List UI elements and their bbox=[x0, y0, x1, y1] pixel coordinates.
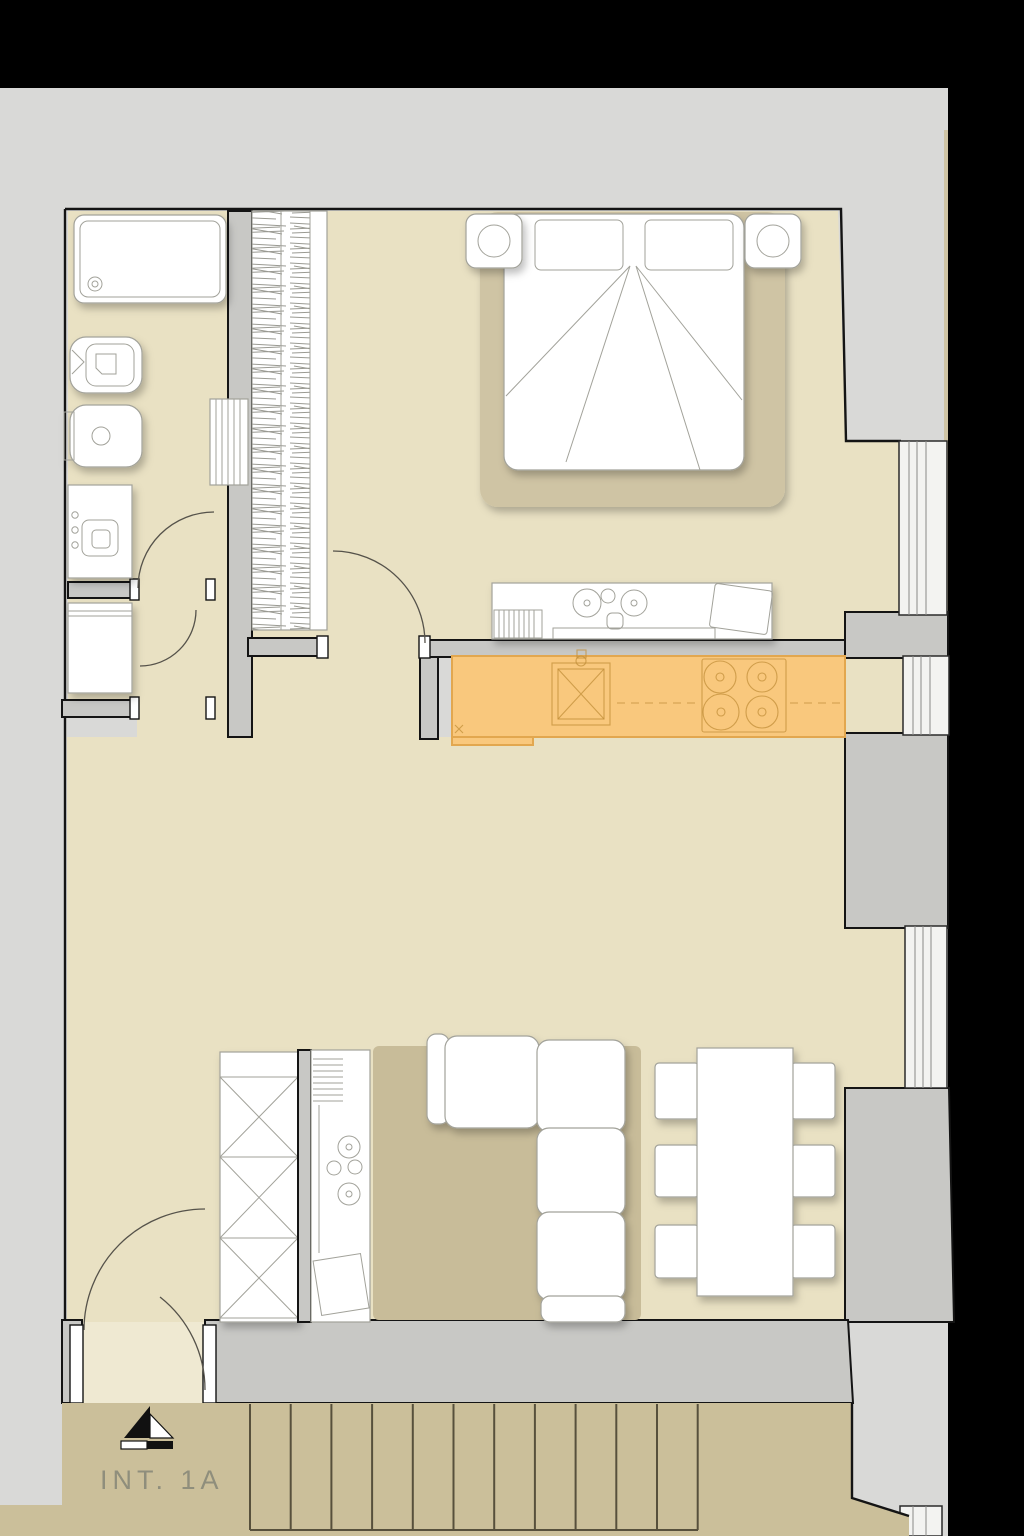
jamb bbox=[206, 697, 215, 719]
wardrobe-closet bbox=[252, 211, 327, 630]
window-kitchen bbox=[903, 656, 949, 735]
wall-pier-3 bbox=[845, 1088, 954, 1322]
wall-under-wardrobe bbox=[248, 638, 327, 656]
nightstand-left bbox=[466, 214, 522, 268]
dining-table bbox=[697, 1048, 793, 1296]
dining-set bbox=[655, 1048, 835, 1296]
toilet bbox=[70, 337, 142, 393]
dining-chair bbox=[655, 1063, 699, 1119]
bathroom-door-opening bbox=[137, 580, 213, 600]
unit-label: INT. 1A bbox=[100, 1465, 224, 1495]
tall-cabinets bbox=[220, 1052, 298, 1322]
double-bed bbox=[504, 214, 744, 470]
wall-laundry-hall bbox=[62, 700, 137, 717]
wall-pier-1 bbox=[845, 612, 948, 658]
kitchen-counter-highlight bbox=[452, 650, 845, 745]
jamb bbox=[70, 1325, 83, 1403]
dining-chair bbox=[791, 1145, 835, 1197]
jamb bbox=[203, 1325, 216, 1403]
stairwell: INT. 1A bbox=[0, 1403, 909, 1536]
hallway-floor bbox=[252, 656, 438, 740]
dining-chair bbox=[655, 1225, 699, 1278]
dining-chair bbox=[791, 1063, 835, 1119]
floor-plan-canvas: INT. 1A bbox=[0, 0, 1024, 1536]
wall-bedroom-kitchen bbox=[423, 640, 845, 657]
jamb bbox=[317, 636, 328, 658]
wall-entry-right bbox=[205, 1320, 853, 1403]
jamb bbox=[206, 579, 215, 600]
dining-chair bbox=[791, 1225, 835, 1278]
wall-kitchen-stub bbox=[420, 657, 438, 739]
floor-plan: INT. 1A bbox=[0, 0, 1024, 1536]
bedroom-door-opening bbox=[327, 638, 423, 658]
nightstand-right bbox=[745, 214, 801, 268]
desk bbox=[492, 583, 773, 639]
wall-bathroom-laundry bbox=[68, 582, 137, 598]
wall-cabinet-stub bbox=[298, 1050, 311, 1322]
bathtub bbox=[74, 215, 226, 303]
vanity-sink bbox=[68, 485, 132, 578]
wall-pier-2 bbox=[845, 733, 948, 928]
towel-radiator-icon bbox=[210, 399, 248, 485]
bidet bbox=[64, 405, 142, 467]
window-living bbox=[905, 926, 947, 1088]
dining-chair bbox=[655, 1145, 699, 1197]
jamb bbox=[130, 697, 139, 719]
entry-vestibule-floor bbox=[82, 1322, 205, 1404]
kitchenette-counter bbox=[311, 1050, 370, 1322]
washing-machine bbox=[68, 603, 132, 693]
living-window-recess bbox=[845, 928, 907, 1088]
living-room bbox=[220, 1034, 835, 1322]
window-bedroom bbox=[899, 441, 947, 615]
